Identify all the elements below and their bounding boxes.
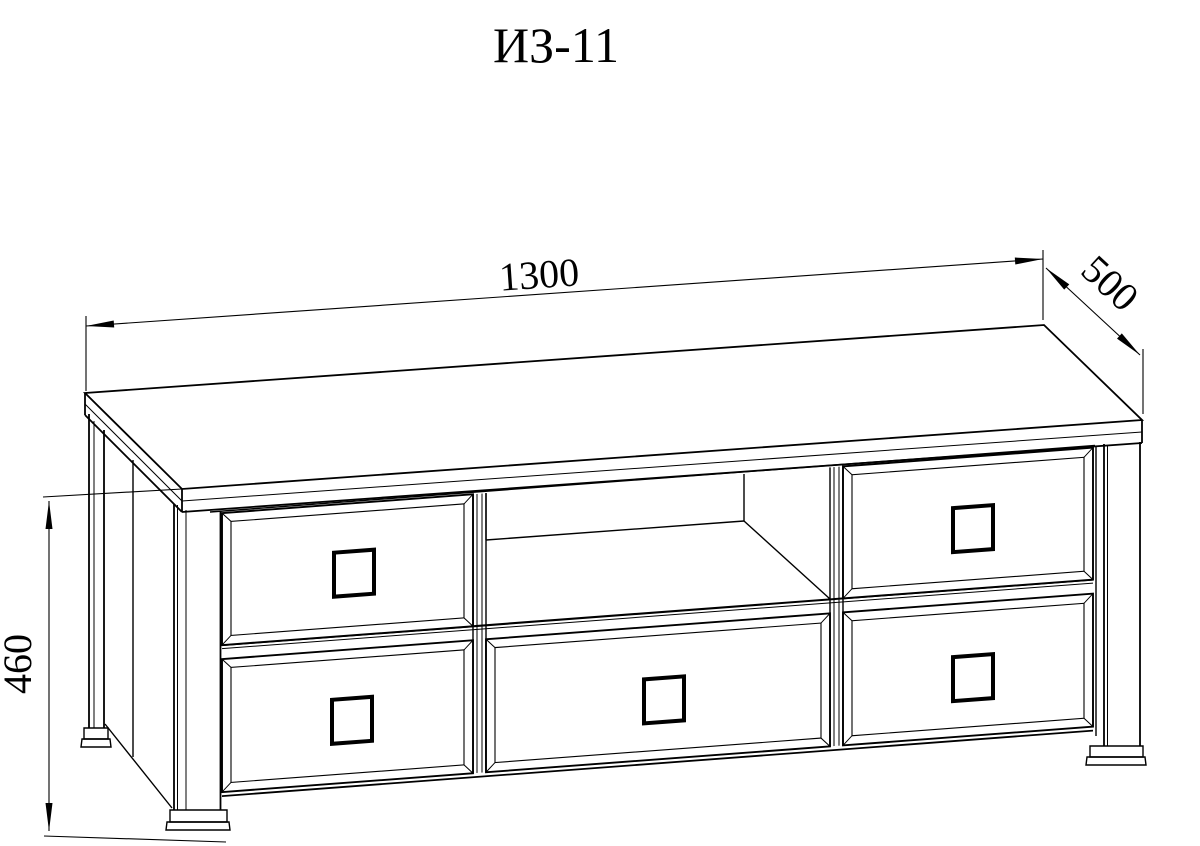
- drawer-bottom-right: [843, 594, 1093, 746]
- front-left-foot: [170, 810, 227, 822]
- drawer-top-left: [222, 494, 473, 645]
- front-left-leg: [166, 504, 230, 830]
- dimension-height: 460: [0, 489, 226, 842]
- back-left-leg: [81, 414, 111, 747]
- drawer-handle: [644, 676, 684, 723]
- drawer-handle: [953, 505, 993, 552]
- drawer-bottom-left: [222, 640, 473, 792]
- drawer-bottom-center: [486, 613, 830, 772]
- drawer-handle: [332, 697, 372, 744]
- left-side-panel: [105, 460, 172, 808]
- drawer-handle: [953, 654, 993, 701]
- open-shelf-interior: [486, 474, 830, 599]
- drawer-top-right: [843, 448, 1093, 599]
- arrow-right: [1015, 258, 1043, 265]
- front-right-leg: [1086, 442, 1146, 765]
- carcass-front-face: [210, 445, 1095, 797]
- arrow-bottom: [46, 803, 53, 831]
- front-right-foot: [1090, 746, 1143, 757]
- left-divider: [473, 493, 486, 773]
- arrow-far: [1117, 333, 1140, 355]
- drawing-title: ИЗ-11: [493, 17, 619, 73]
- dimension-depth-label: 500: [1073, 246, 1148, 320]
- arrow-near: [1046, 268, 1069, 290]
- back-left-foot: [84, 728, 108, 739]
- tv-stand-drawing: [81, 325, 1146, 830]
- right-divider: [830, 466, 843, 746]
- dimension-width-label: 1300: [498, 249, 581, 299]
- arrow-top: [46, 501, 53, 529]
- technical-drawing-canvas: ИЗ-11: [0, 0, 1200, 846]
- drawer-handle: [334, 550, 374, 597]
- drawing-sheet: ИЗ-11: [0, 0, 1200, 846]
- arrow-left: [86, 321, 114, 328]
- dimension-height-label: 460: [0, 634, 40, 694]
